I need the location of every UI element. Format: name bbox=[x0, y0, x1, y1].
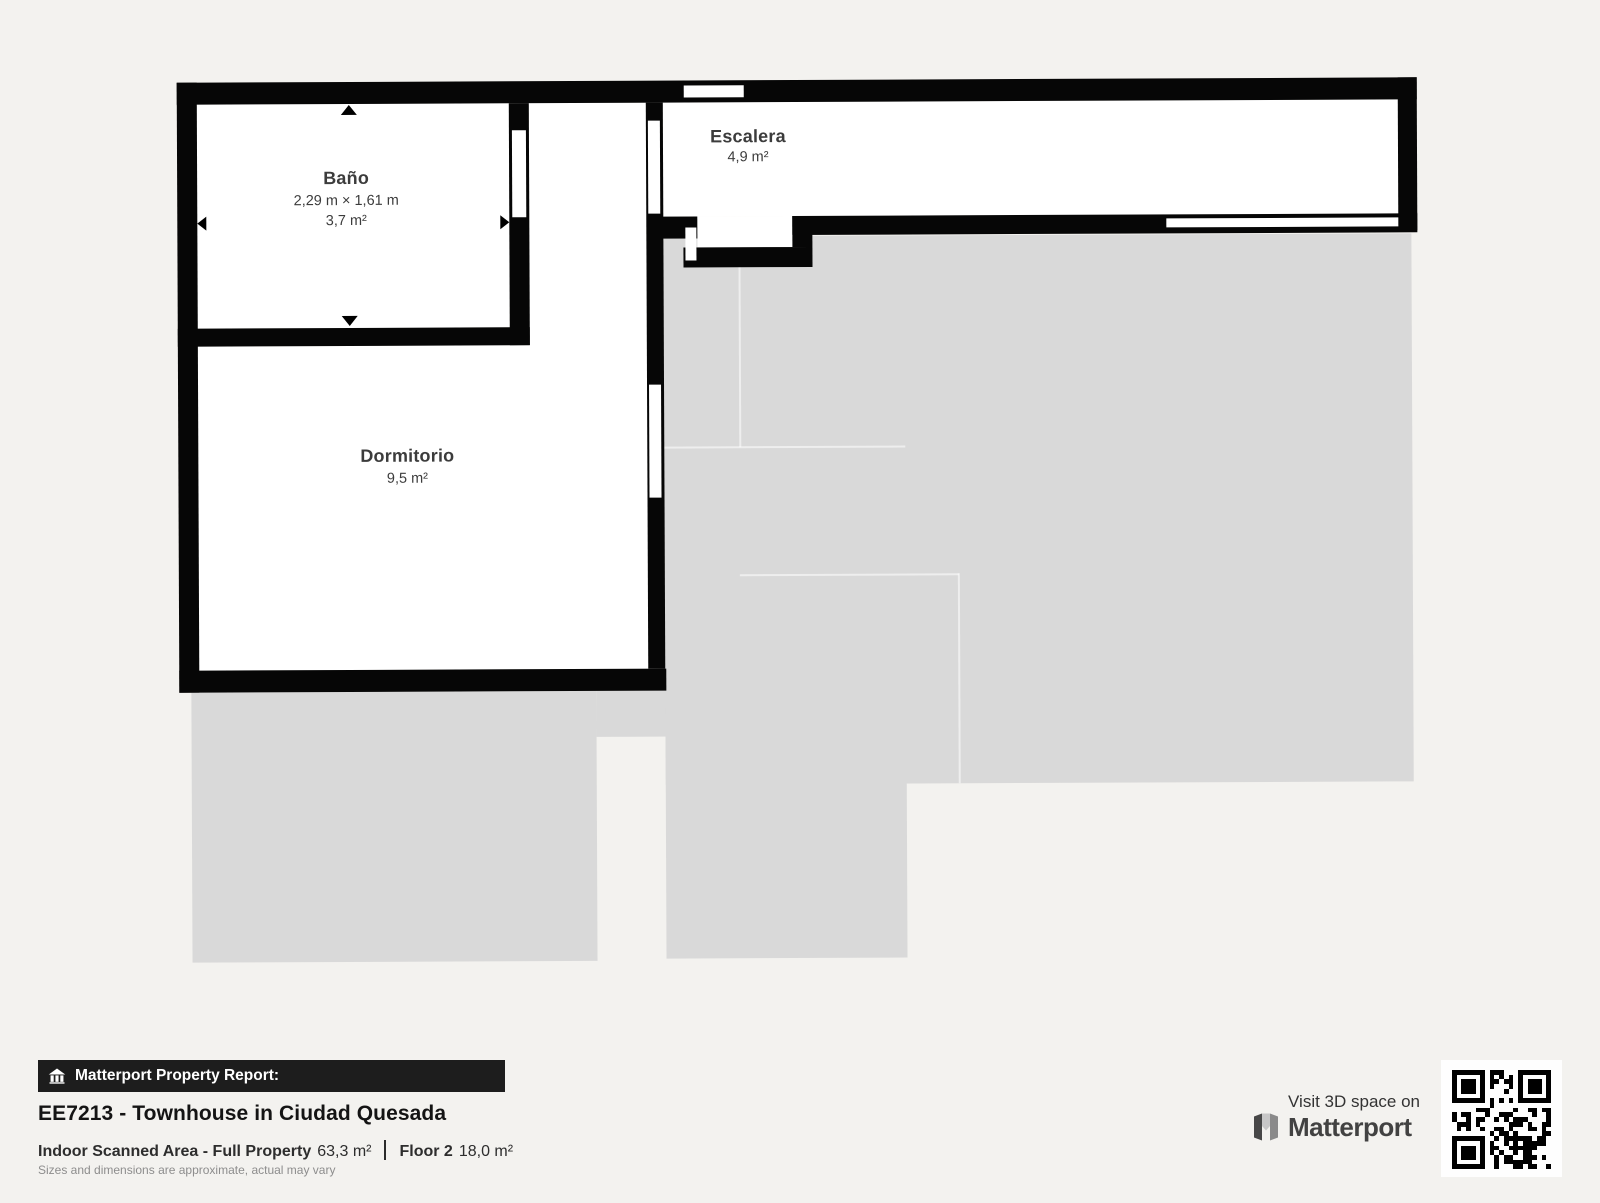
room-label-escalera: Escalera bbox=[638, 126, 858, 148]
door-opening bbox=[649, 385, 661, 498]
disclaimer-text: Sizes and dimensions are approximate, ac… bbox=[38, 1163, 335, 1177]
dimension-arrow-right bbox=[500, 215, 509, 229]
room-area-bano: 3,7 m² bbox=[236, 212, 456, 229]
wall-right bbox=[1398, 77, 1418, 230]
scanned-area-label: Indoor Scanned Area - Full Property bbox=[38, 1143, 311, 1160]
door-opening bbox=[685, 227, 696, 260]
room-area-dormitorio: 9,5 m² bbox=[297, 470, 517, 487]
floor-underlay-region bbox=[663, 233, 1413, 784]
window-opening bbox=[684, 85, 744, 97]
wall-alcove-bottom bbox=[683, 247, 812, 268]
dimension-arrow-down bbox=[342, 316, 358, 326]
floor-plan: Baño 2,29 m × 1,61 m 3,7 m² Dormitorio 9… bbox=[0, 0, 1600, 1203]
door-opening bbox=[512, 130, 526, 217]
wall-alcove-right bbox=[792, 216, 812, 247]
floor-value: 18,0 m² bbox=[459, 1143, 513, 1160]
home-icon bbox=[48, 1067, 66, 1085]
matterport-wordmark: Matterport bbox=[1288, 1112, 1412, 1143]
stairwell-alcove bbox=[697, 216, 792, 247]
dimension-arrow-up bbox=[341, 105, 357, 115]
matterport-m-icon bbox=[1252, 1113, 1280, 1146]
qr-card bbox=[1441, 1060, 1562, 1177]
room-dimensions-bano: 2,29 m × 1,61 m bbox=[236, 192, 456, 209]
report-badge-label: Matterport Property Report: bbox=[75, 1067, 279, 1085]
wall-bano-bottom bbox=[178, 327, 530, 347]
info-divider bbox=[384, 1140, 386, 1160]
property-title: EE7213 - Townhouse in Ciudad Quesada bbox=[38, 1102, 446, 1126]
scanned-area-value: 63,3 m² bbox=[317, 1143, 371, 1160]
report-badge-bar: Matterport Property Report: bbox=[38, 1060, 505, 1092]
room-area-escalera: 4,9 m² bbox=[638, 149, 858, 166]
floor-label: Floor 2 bbox=[399, 1143, 452, 1160]
room-label-dormitorio: Dormitorio bbox=[297, 445, 517, 467]
qr-code bbox=[1452, 1070, 1551, 1169]
visit-3d-space-text: Visit 3D space on bbox=[1120, 1092, 1420, 1112]
room-label-bano: Baño bbox=[236, 167, 456, 189]
dimension-arrow-left bbox=[197, 217, 206, 231]
floor-underlay-region bbox=[191, 691, 597, 963]
wall-dormitorio-bottom bbox=[179, 669, 666, 693]
wall-left bbox=[177, 83, 200, 693]
room-dormitorio bbox=[198, 345, 648, 671]
scan-info-line: Indoor Scanned Area - Full Property63,3 … bbox=[38, 1136, 513, 1161]
property-report-page: { "floorplan": { "rooms": [ { "name": "B… bbox=[0, 0, 1600, 1200]
window-opening bbox=[1166, 217, 1398, 227]
